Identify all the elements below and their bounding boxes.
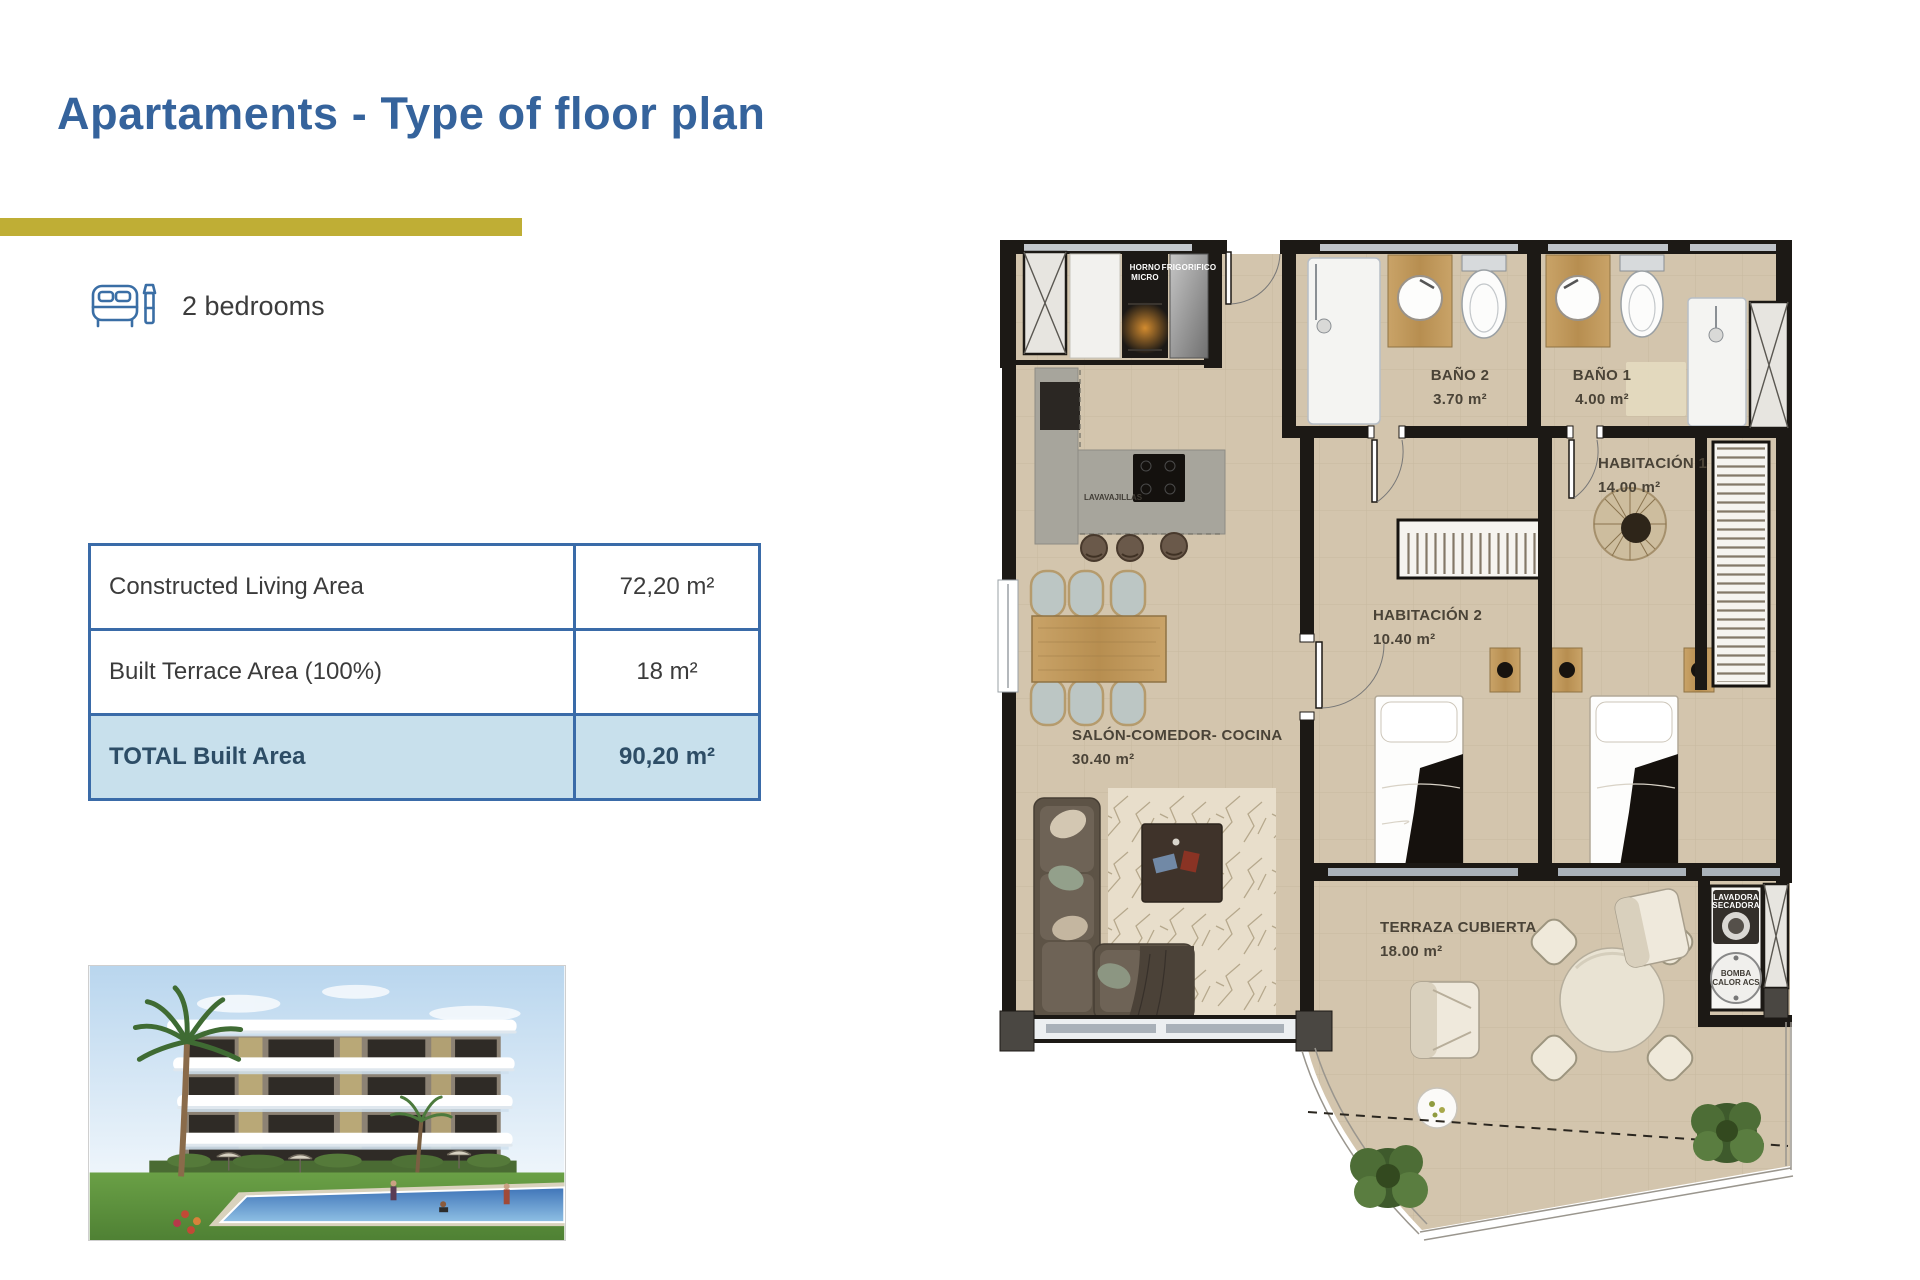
room-area-terraza: 18.00 m² xyxy=(1380,943,1442,960)
row-value: 72,20 m² xyxy=(575,545,760,630)
bedrooms-badge: 2 bedrooms xyxy=(90,278,325,334)
dishwasher-label: LAVAVAJILLAS xyxy=(1084,493,1143,502)
bar-stools xyxy=(1081,533,1187,561)
row-label: Constructed Living Area xyxy=(90,545,575,630)
table-row: Built Terrace Area (100%) 18 m² xyxy=(90,630,760,715)
fridge-label: FRIGORIFICO xyxy=(1162,263,1217,272)
room-label-bano2: BAÑO 2 xyxy=(1431,366,1489,384)
table-row-total: TOTAL Built Area 90,20 m² xyxy=(90,715,760,800)
oven-label-2: MICRO xyxy=(1131,273,1159,282)
rattan-chair xyxy=(1594,488,1666,560)
room-area-hab2: 10.40 m² xyxy=(1373,631,1435,648)
bed-icon xyxy=(90,278,160,334)
room-label-salon: SALÓN-COMEDOR- COCINA xyxy=(1072,726,1282,744)
room-area-bano1: 4.00 m² xyxy=(1575,391,1629,408)
wardrobe-hab1 xyxy=(1713,442,1769,686)
heat-pump-label-1: BOMBA xyxy=(1721,969,1751,978)
room-area-bano2: 3.70 m² xyxy=(1433,391,1487,408)
bedrooms-label: 2 bedrooms xyxy=(182,291,325,322)
page-title: Apartaments - Type of floor plan xyxy=(57,88,765,140)
coffee-table xyxy=(1142,824,1222,902)
area-table: Constructed Living Area 72,20 m² Built T… xyxy=(88,543,761,801)
laundry-closet: LAVADORA SECADORA BOMBA CALOR ACS xyxy=(1710,886,1762,1010)
row-value: 90,20 m² xyxy=(575,715,760,800)
row-label: Built Terrace Area (100%) xyxy=(90,630,575,715)
room-label-terraza: TERRAZA CUBIERTA xyxy=(1380,919,1536,936)
heat-pump-label-2: CALOR ACS xyxy=(1712,978,1760,987)
room-label-hab1: HABITACIÓN 1 xyxy=(1598,454,1707,472)
room-label-hab2: HABITACIÓN 2 xyxy=(1373,606,1482,624)
row-label: TOTAL Built Area xyxy=(90,715,575,800)
dining-set xyxy=(1031,571,1166,725)
room-label-bano1: BAÑO 1 xyxy=(1573,366,1631,384)
dining-table xyxy=(1032,616,1166,682)
room-area-salon: 30.40 m² xyxy=(1072,751,1134,768)
accent-bar xyxy=(0,218,522,236)
floor-plan: LAVAVAJILLAS xyxy=(990,228,1800,1250)
table-row: Constructed Living Area 72,20 m² xyxy=(90,545,760,630)
oven-label-1: HORNO xyxy=(1130,263,1161,272)
room-area-hab1: 14.00 m² xyxy=(1598,479,1660,496)
washer-label-2: SECADORA xyxy=(1712,901,1759,910)
kitchen-appliances: HORNO MICRO FRIGORIFICO xyxy=(1070,254,1216,358)
row-value: 18 m² xyxy=(575,630,760,715)
photo-building xyxy=(167,1020,516,1163)
wardrobe-hab2 xyxy=(1398,520,1544,578)
building-photo xyxy=(88,965,566,1241)
